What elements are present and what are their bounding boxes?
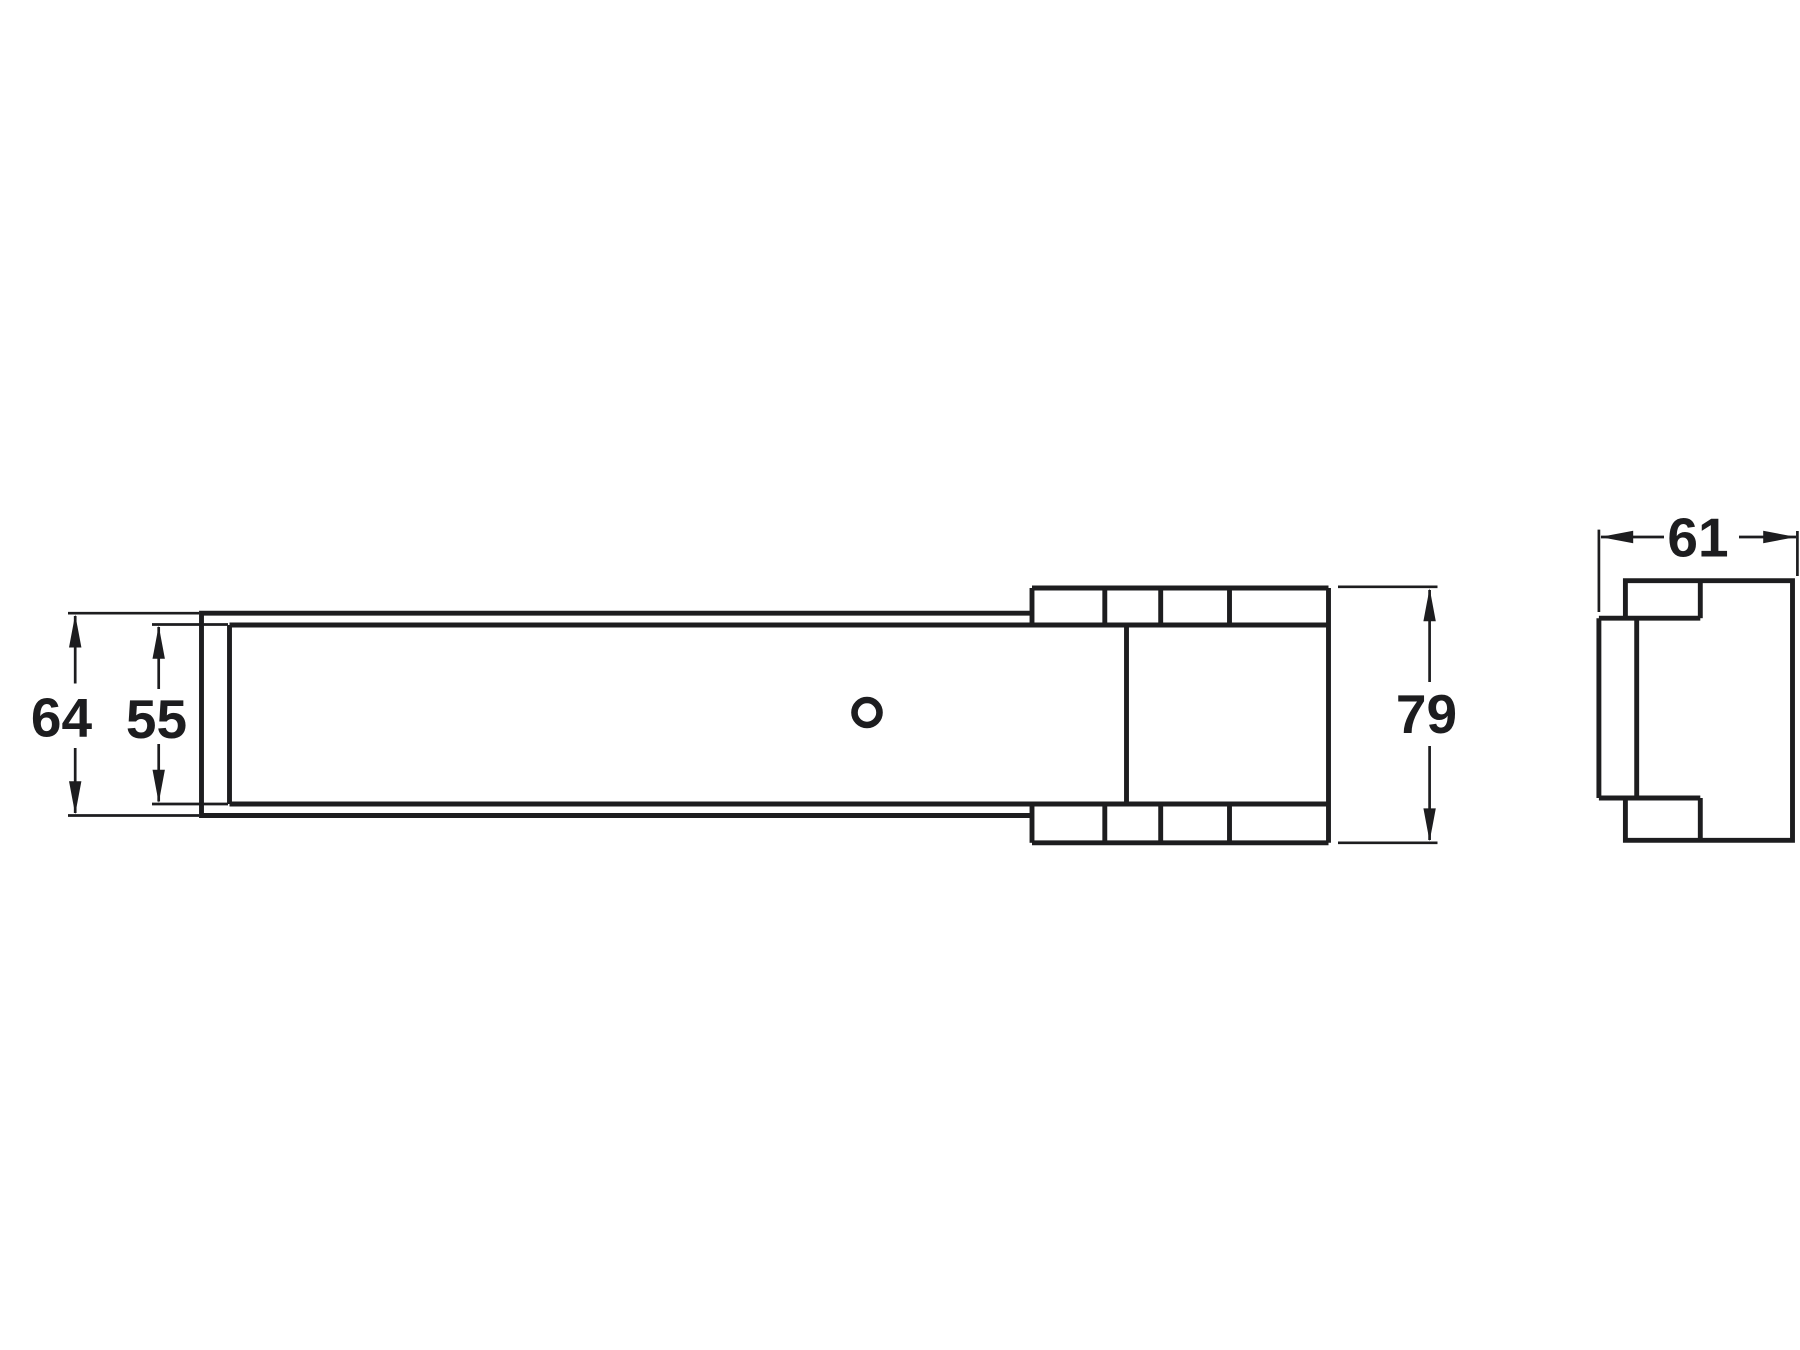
svg-text:61: 61 bbox=[1667, 506, 1728, 568]
svg-text:64: 64 bbox=[31, 686, 93, 748]
svg-text:79: 79 bbox=[1396, 683, 1457, 745]
svg-text:55: 55 bbox=[126, 688, 187, 750]
